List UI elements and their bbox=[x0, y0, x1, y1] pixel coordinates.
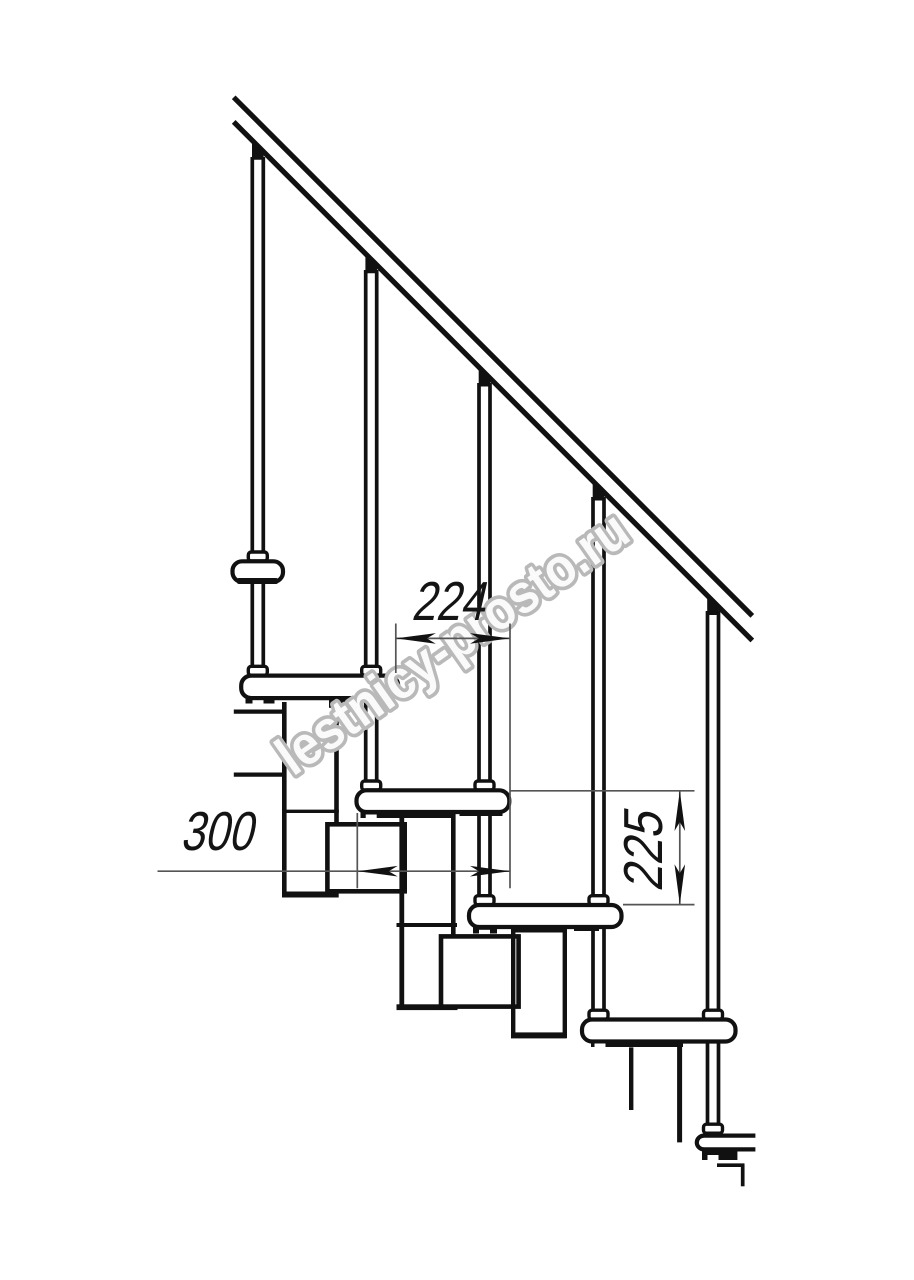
svg-text:224: 224 bbox=[408, 571, 495, 632]
svg-text:225: 225 bbox=[613, 802, 674, 895]
svg-text:300: 300 bbox=[177, 801, 263, 862]
